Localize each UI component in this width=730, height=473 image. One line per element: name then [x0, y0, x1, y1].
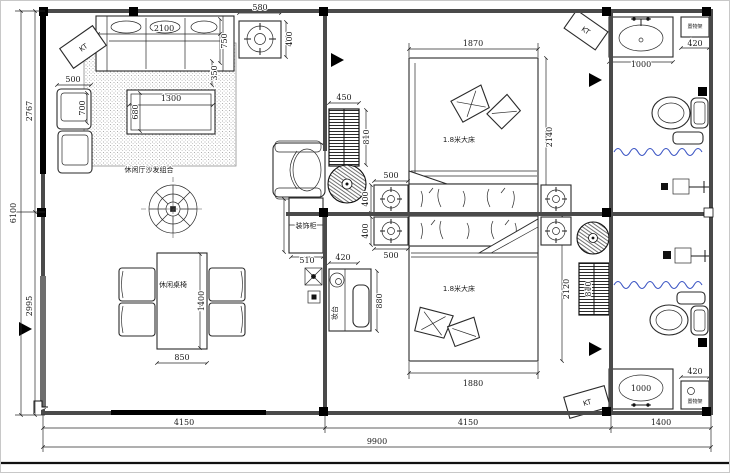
- dim-sofa-depth: 750: [220, 33, 229, 48]
- label-bed2: 1.8米大床: [443, 284, 475, 293]
- dim-basin-width-bottom: 1000: [631, 384, 651, 393]
- shower-curtain-top: [614, 149, 702, 156]
- floorplan-canvas: 6100 2767 2995 4150 4150 1400 9900 2100 …: [0, 0, 730, 473]
- dim-vanity-length: 880: [375, 293, 384, 308]
- armchair: [273, 141, 325, 199]
- toilet-bottom: [650, 292, 708, 335]
- toilet-top: [652, 97, 708, 144]
- dim-sofa-width: 2100: [154, 24, 174, 33]
- label-leisure-table: 休闲桌椅: [159, 280, 187, 289]
- label-bed1: 1.8米大床: [443, 135, 475, 144]
- side-table-lamp: [239, 21, 281, 58]
- dim-radiator-width: 450: [336, 93, 351, 102]
- dim-bottom-total: 9900: [367, 437, 387, 446]
- dim-side-table-depth: 400: [285, 31, 294, 46]
- dim-single-sofa-depth: 700: [78, 100, 87, 115]
- dim-nightstand-width-bottom: 500: [383, 251, 398, 260]
- label-deco-cabinet: 装饰柜: [296, 221, 317, 230]
- dim-vanity-width: 420: [335, 253, 350, 262]
- dim-bottom-seg2: 4150: [458, 418, 478, 427]
- dim-radiator2-height: 810: [584, 281, 593, 296]
- dim-dining-width: 850: [174, 353, 189, 362]
- shower-valve-bottom: [663, 248, 710, 263]
- dim-dining-length: 1400: [197, 291, 206, 311]
- dim-bed2-length: 2120: [562, 279, 571, 299]
- dim-left-upper: 2767: [25, 101, 34, 121]
- dim-bed1-width: 1870: [463, 39, 483, 48]
- basin-top: [609, 17, 673, 57]
- marker-triangle-icon: [589, 73, 602, 87]
- dim-nightstand-width-top: 500: [383, 171, 398, 180]
- dim-left-total: 6100: [9, 203, 18, 223]
- floorplan-drawing: 6100 2767 2995 4150 4150 1400 9900 2100 …: [1, 1, 730, 473]
- dim-left-lower: 2995: [25, 296, 34, 316]
- dim-bed2-width: 1880: [463, 379, 483, 388]
- dining-table: [119, 253, 245, 349]
- dim-bottom-seg1: 4150: [174, 418, 194, 427]
- marker-triangle-icon: [589, 342, 602, 356]
- fan-icon-2: [577, 222, 609, 254]
- dim-bed1-length: 2140: [545, 127, 554, 147]
- dim-shelf-width-bottom: 420: [687, 367, 702, 376]
- shower-valve-top: [661, 179, 709, 194]
- label-shelf-bottom: 置物架: [687, 398, 702, 405]
- dim-coffee-table-depth: 680: [131, 104, 140, 119]
- dim-cabinet-width: 510: [299, 256, 314, 265]
- dim-nightstand-depth-top: 400: [361, 191, 370, 206]
- shower-curtain-bottom: [614, 282, 702, 289]
- dim-coffee-table-width: 1300: [161, 94, 181, 103]
- bathroom-bottom: [609, 248, 710, 409]
- dim-side-table-width: 580: [252, 3, 267, 12]
- dim-basin-width-top: 1000: [631, 60, 651, 69]
- ceiling-light-icon: [141, 177, 205, 241]
- dim-sofa-side: 350: [210, 65, 219, 80]
- dim-shelf-width-top: 420: [687, 39, 702, 48]
- marker-triangle-icon: [331, 53, 344, 67]
- dim-radiator-height: 810: [362, 129, 371, 144]
- label-shelf-top: 置物架: [687, 23, 702, 30]
- dim-nightstand-depth-bottom: 400: [361, 223, 370, 238]
- dim-single-sofa-width: 500: [65, 75, 80, 84]
- single-sofa-2: [58, 131, 92, 173]
- living-room: [57, 13, 325, 363]
- label-living-sofa-group: 休闲厅沙发组合: [125, 165, 174, 174]
- label-vanity: 妆台: [330, 306, 339, 320]
- vanity-table: [329, 269, 371, 331]
- dim-bottom-seg3: 1400: [651, 418, 671, 427]
- fixture-symbol-icon: [305, 268, 322, 303]
